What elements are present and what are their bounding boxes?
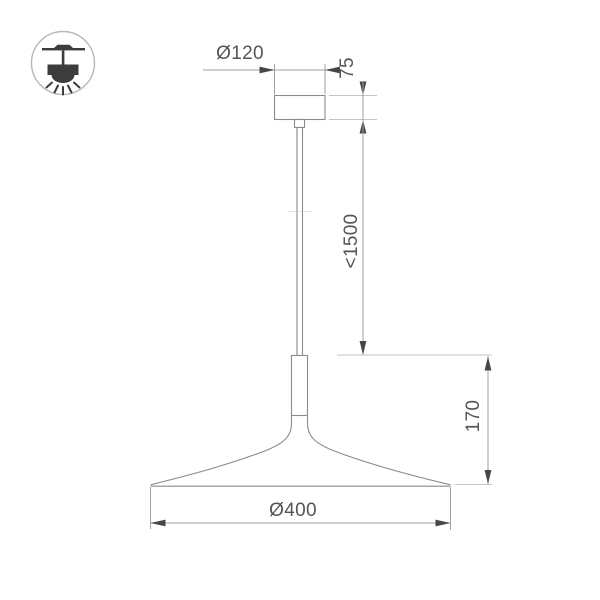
icon-diffuser-dome [52, 75, 75, 83]
suspension-length-label: <1500 [342, 201, 362, 281]
lamp-neck [292, 356, 308, 416]
dim-canopy-diameter [203, 64, 341, 94]
canopy [275, 96, 326, 120]
arrow-down-icon [360, 341, 367, 355]
lamp-drawing [151, 96, 451, 487]
icon-ceiling-line [42, 48, 85, 50]
dim-canopy-height [329, 82, 377, 134]
shade-profile-right [308, 416, 451, 485]
cable-gland [295, 120, 305, 128]
icon-canopy [54, 45, 73, 48]
icon-shade [48, 65, 79, 76]
shade-diameter-label: Ø400 [258, 501, 328, 521]
icon-stem [62, 50, 65, 65]
arrow-down-icon [485, 470, 492, 484]
canopy-height-label: 75 [338, 48, 358, 88]
suspension-cable [297, 128, 303, 356]
arrow-right-icon [436, 520, 451, 527]
arrow-right-icon [260, 67, 275, 74]
fixture-height-label: 170 [464, 386, 484, 446]
canopy-diameter-label: Ø120 [210, 44, 270, 64]
arrow-left-icon [151, 520, 166, 527]
arrow-up-icon [485, 357, 492, 371]
shade-profile-left [151, 416, 292, 485]
drawing-canvas: Ø120 75 <1500 170 Ø400 [0, 0, 600, 600]
ceiling-pendant-icon [32, 32, 95, 95]
